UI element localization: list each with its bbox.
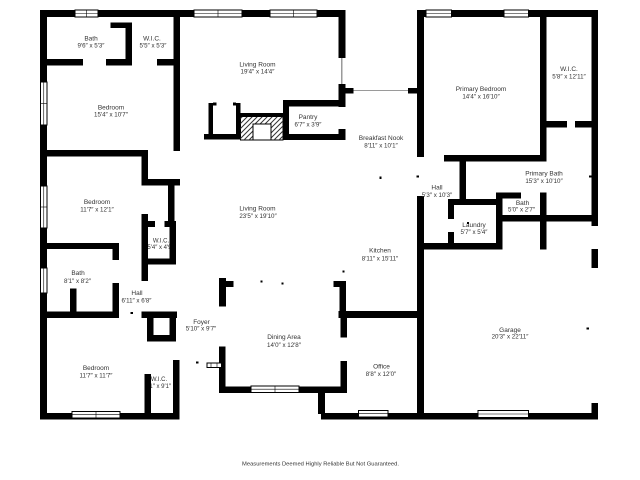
svg-text:Bath: Bath <box>84 36 98 43</box>
svg-text:5′0″ x 2′7″: 5′0″ x 2′7″ <box>508 207 536 214</box>
svg-text:Pantry: Pantry <box>299 114 319 121</box>
svg-text:15′3″ x 10′10″: 15′3″ x 10′10″ <box>525 178 563 185</box>
svg-text:Living Room: Living Room <box>239 206 275 213</box>
svg-text:Bath: Bath <box>71 270 85 277</box>
svg-text:Kitchen: Kitchen <box>369 248 391 255</box>
svg-text:Measurements Deemed Highly Rel: Measurements Deemed Highly Reliable But … <box>242 462 399 468</box>
svg-text:5′7″ x 5′4″: 5′7″ x 5′4″ <box>461 229 489 236</box>
svg-text:Bedroom: Bedroom <box>98 105 124 112</box>
svg-text:Bedroom: Bedroom <box>84 199 110 206</box>
svg-text:6′7″ x 3′9″: 6′7″ x 3′9″ <box>295 122 323 129</box>
svg-text:W.I.C.: W.I.C. <box>153 239 170 245</box>
svg-text:Primary Bath: Primary Bath <box>525 171 563 178</box>
svg-text:Hall: Hall <box>131 290 143 297</box>
svg-text:W.I.C.: W.I.C. <box>560 66 578 73</box>
svg-text:5′10″ x 9′7″: 5′10″ x 9′7″ <box>186 326 217 333</box>
svg-text:Hall: Hall <box>431 185 443 192</box>
svg-text:9′6″ x 5′3″: 9′6″ x 5′3″ <box>78 43 106 50</box>
svg-text:5′5″ x 5′3″: 5′5″ x 5′3″ <box>140 43 168 50</box>
svg-text:Dining Area: Dining Area <box>267 334 301 341</box>
svg-text:19′4″ x 14′4″: 19′4″ x 14′4″ <box>241 69 276 76</box>
svg-text:Breakfast Nook: Breakfast Nook <box>359 135 404 142</box>
svg-text:Living Room: Living Room <box>239 62 275 69</box>
svg-text:W.I.C.: W.I.C. <box>143 36 161 43</box>
svg-text:14′4″ x 16′10″: 14′4″ x 16′10″ <box>462 94 500 101</box>
svg-text:23′5″ x 19′10″: 23′5″ x 19′10″ <box>239 213 277 220</box>
svg-text:8′11″ x 10′1″: 8′11″ x 10′1″ <box>364 143 398 150</box>
svg-text:8′8″ x 12′0″: 8′8″ x 12′0″ <box>366 371 397 378</box>
svg-text:8′1″ x 8′2″: 8′1″ x 8′2″ <box>64 278 92 285</box>
svg-text:5′8″ x 12′11″: 5′8″ x 12′11″ <box>552 74 586 81</box>
svg-text:Laundry: Laundry <box>462 222 486 229</box>
svg-text:11′7″ x 11′7″: 11′7″ x 11′7″ <box>80 373 114 380</box>
svg-text:8′11″ x 15′11″: 8′11″ x 15′11″ <box>362 256 399 263</box>
svg-text:15′4″ x 10′7″: 15′4″ x 10′7″ <box>94 112 129 119</box>
svg-text:Bedroom: Bedroom <box>83 365 109 372</box>
svg-text:W.I.C.: W.I.C. <box>151 377 168 383</box>
svg-text:Primary Bedroom: Primary Bedroom <box>456 86 507 93</box>
svg-text:11′7″ x 12′1″: 11′7″ x 12′1″ <box>80 207 114 214</box>
svg-text:5′3″ x 10′3″: 5′3″ x 10′3″ <box>422 192 453 199</box>
svg-text:20′3″ x 22′11″: 20′3″ x 22′11″ <box>492 334 530 341</box>
svg-text:6′11″ x 6′8″: 6′11″ x 6′8″ <box>122 298 153 305</box>
svg-text:14′0″ x 12′8″: 14′0″ x 12′8″ <box>267 342 302 349</box>
svg-text:Office: Office <box>373 364 390 371</box>
